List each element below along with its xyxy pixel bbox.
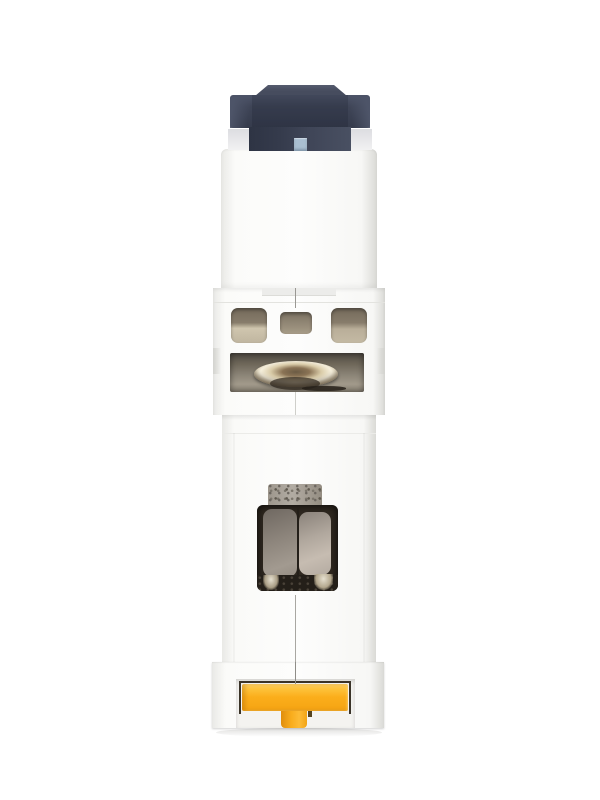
mold-line-left — [233, 433, 235, 662]
din-clip-stem-notch — [308, 711, 312, 717]
housing-bottom-section — [212, 662, 384, 728]
center-seam-lower — [295, 595, 296, 662]
housing-mid-section — [222, 415, 376, 662]
toggle-brim-center-shade — [252, 95, 348, 128]
product-photo-circuit-breaker — [0, 0, 600, 800]
toggle-indicator-window — [294, 138, 307, 151]
mold-line-right — [363, 433, 365, 662]
toggle-stem — [249, 127, 351, 151]
center-seam-below-screw — [295, 392, 296, 415]
center-seam-upper — [295, 288, 296, 308]
housing-terminal-flange — [213, 288, 385, 415]
terminal-opening-center — [280, 312, 312, 334]
contact-lobe-divider — [297, 508, 299, 578]
toggle-brim — [230, 95, 370, 128]
mid-section-mold-line — [222, 433, 376, 434]
terminal-screw-recess — [230, 353, 364, 392]
toggle-wing-tip-left — [230, 97, 254, 128]
flange-side-notch-right — [377, 348, 385, 374]
terminal-opening-right — [331, 308, 367, 343]
toggle-housing-shoulder-right — [350, 129, 372, 150]
din-rail-clip-stem — [281, 711, 307, 728]
flange-top-recess — [262, 288, 336, 296]
toggle-housing-shoulder-left — [228, 129, 250, 150]
terminal-opening-left — [231, 308, 267, 343]
device-drop-shadow — [216, 728, 382, 737]
center-seam-bottom — [295, 662, 296, 684]
flange-ledge-line — [213, 302, 385, 303]
terminal-screw-slot-shadow — [302, 386, 346, 391]
contact-lobe-right — [299, 512, 331, 575]
contact-lobe-left — [263, 509, 297, 577]
housing-upper-section — [221, 149, 377, 288]
metal-contact-tab — [268, 484, 322, 507]
contact-inspection-window — [257, 505, 338, 591]
din-rail-clip-bar — [242, 684, 348, 711]
flange-side-notch-left — [213, 348, 221, 374]
toggle-wing-tip-right — [346, 97, 370, 128]
mid-section-step-shadow — [222, 415, 376, 420]
